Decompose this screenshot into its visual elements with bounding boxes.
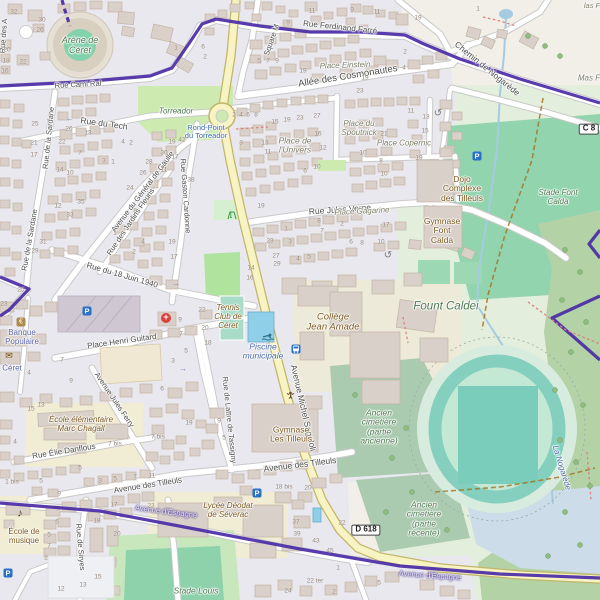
map-canvas[interactable]: Rue Cami RalRue Ferdinand FarréAllée des…	[0, 0, 600, 600]
map-base-layer	[0, 0, 600, 600]
